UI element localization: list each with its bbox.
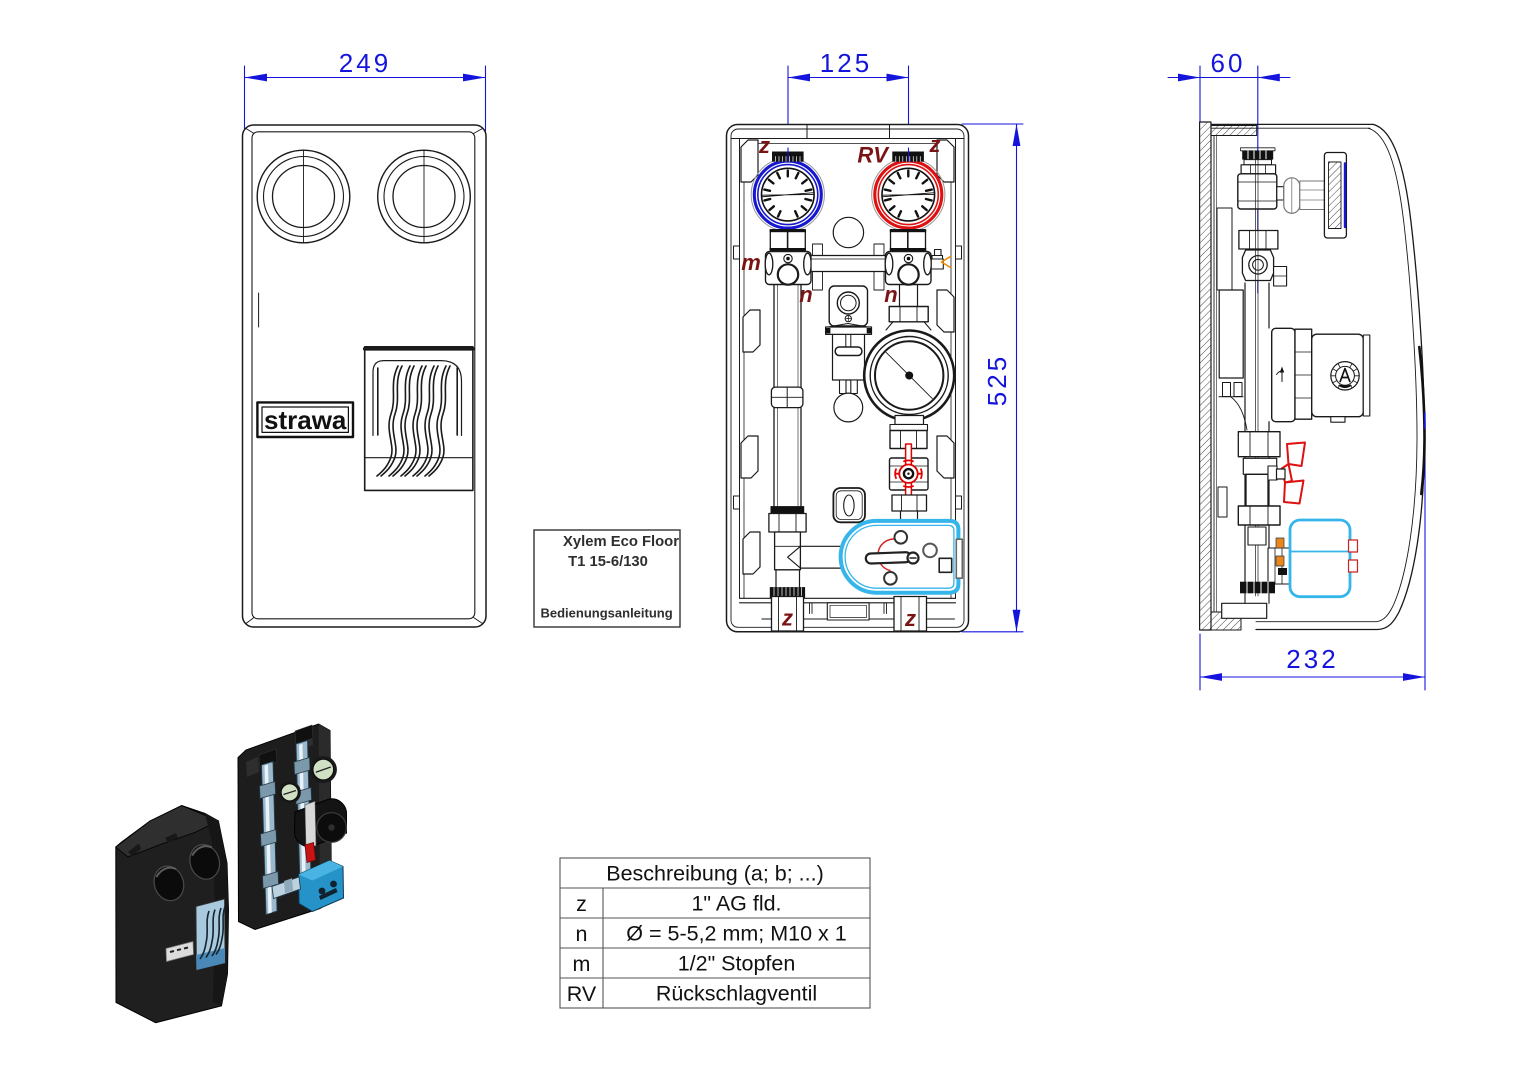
svg-text:Beschreibung (a; b; ...): Beschreibung (a; b; ...) bbox=[606, 862, 824, 886]
svg-text:60: 60 bbox=[1211, 48, 1246, 78]
svg-text:Rückschlagventil: Rückschlagventil bbox=[656, 982, 817, 1006]
svg-text:1" AG fld.: 1" AG fld. bbox=[691, 892, 781, 916]
svg-text:m: m bbox=[573, 952, 591, 976]
svg-text:T1 15-6/130: T1 15-6/130 bbox=[568, 554, 648, 570]
svg-text:249: 249 bbox=[339, 48, 391, 78]
svg-text:Bedienungsanleitung: Bedienungsanleitung bbox=[541, 606, 673, 621]
svg-text:z: z bbox=[576, 892, 587, 916]
svg-text:z: z bbox=[781, 606, 793, 631]
svg-text:z: z bbox=[758, 133, 770, 158]
svg-text:RV: RV bbox=[567, 982, 597, 1006]
svg-text:232: 232 bbox=[1286, 644, 1338, 674]
svg-text:Ø = 5-5,2 mm; M10 x 1: Ø = 5-5,2 mm; M10 x 1 bbox=[626, 922, 846, 946]
svg-text:125: 125 bbox=[820, 48, 872, 78]
svg-text:z: z bbox=[904, 606, 916, 631]
svg-text:z: z bbox=[929, 132, 941, 157]
svg-text:strawa: strawa bbox=[264, 405, 347, 435]
svg-text:525: 525 bbox=[982, 354, 1012, 406]
svg-text:n: n bbox=[576, 922, 588, 946]
svg-text:m: m bbox=[741, 250, 761, 275]
svg-text:n: n bbox=[884, 282, 897, 307]
svg-text:Xylem Eco Floor: Xylem Eco Floor bbox=[563, 534, 679, 550]
svg-text:n: n bbox=[799, 282, 812, 307]
svg-text:1/2" Stopfen: 1/2" Stopfen bbox=[678, 952, 796, 976]
svg-text:RV: RV bbox=[857, 143, 890, 168]
